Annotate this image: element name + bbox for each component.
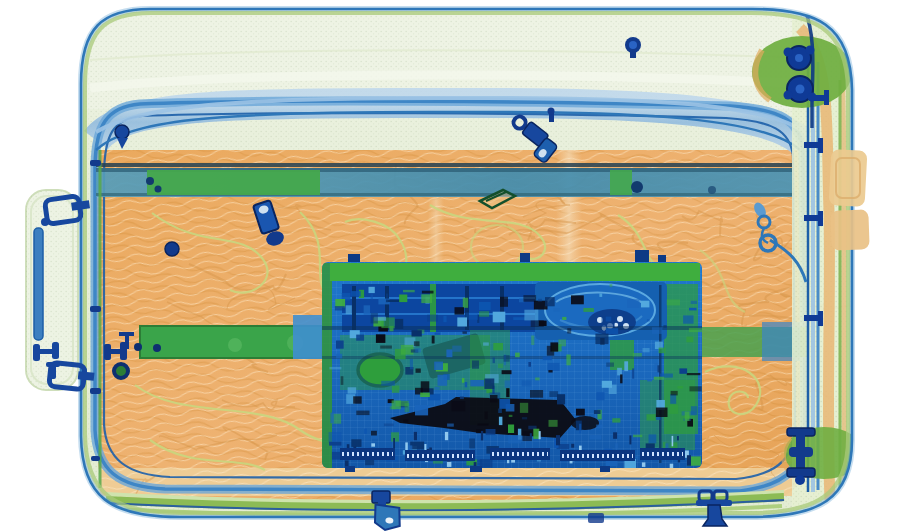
rivet-mid-left [165,242,179,256]
zipper-stop [588,513,604,523]
telescopic-handle-upper [96,168,792,197]
board-tab [658,255,666,263]
board-tab [635,250,649,263]
handle-metal-rod [34,228,43,340]
side-pocket-flap [829,149,870,251]
xray-scan-image [0,0,903,532]
handle-bar-shadow-line [96,163,792,167]
laptop-motherboard [322,250,703,472]
board-tab [520,253,530,263]
